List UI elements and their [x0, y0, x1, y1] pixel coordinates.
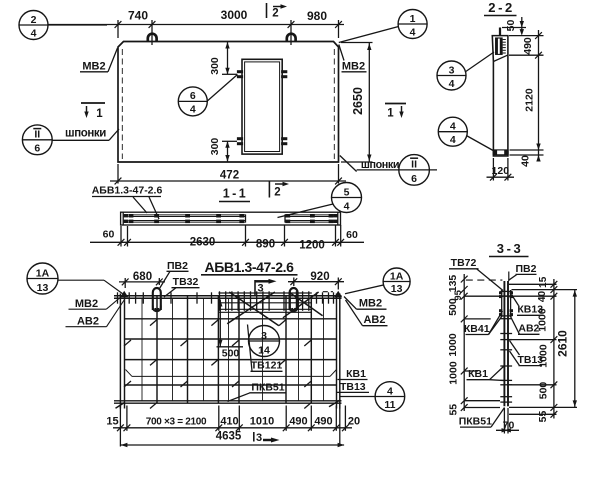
svg-text:13: 13	[37, 282, 49, 294]
svg-text:14: 14	[258, 344, 270, 356]
svg-text:3: 3	[257, 283, 263, 295]
svg-text:ПВ2: ПВ2	[167, 260, 188, 272]
svg-text:АВ2: АВ2	[77, 315, 99, 327]
svg-text:II: II	[34, 129, 40, 141]
svg-text:1010: 1010	[250, 416, 274, 428]
svg-text:70: 70	[503, 419, 515, 431]
svg-text:ПВ2: ПВ2	[516, 263, 537, 275]
svg-text:4: 4	[450, 121, 456, 133]
svg-text:3000: 3000	[221, 8, 248, 22]
svg-text:700 ×3 = 2100: 700 ×3 = 2100	[146, 416, 207, 427]
svg-text:1: 1	[410, 13, 416, 25]
svg-text:2: 2	[272, 8, 278, 20]
svg-text:ТВ13: ТВ13	[340, 381, 366, 393]
svg-text:500: 500	[222, 348, 240, 360]
svg-text:2650: 2650	[351, 87, 365, 115]
svg-text:КВ1: КВ1	[468, 368, 488, 380]
svg-text:3: 3	[256, 432, 262, 444]
svg-text:АБВ1.3-47-2.6: АБВ1.3-47-2.6	[205, 259, 295, 275]
svg-text:2630: 2630	[190, 237, 216, 249]
svg-text:1000: 1000	[447, 333, 459, 357]
svg-text:135: 135	[447, 275, 459, 293]
svg-text:55: 55	[448, 404, 460, 416]
svg-text:680: 680	[133, 271, 152, 283]
svg-text:410: 410	[220, 416, 238, 428]
svg-text:500: 500	[447, 298, 459, 316]
svg-text:II: II	[411, 159, 417, 171]
svg-text:300: 300	[209, 57, 221, 75]
svg-text:120: 120	[492, 165, 510, 177]
svg-text:1: 1	[387, 108, 394, 120]
svg-text:15: 15	[538, 276, 549, 288]
svg-text:472: 472	[220, 169, 239, 181]
svg-text:60: 60	[103, 229, 115, 241]
svg-text:2: 2	[274, 187, 280, 199]
svg-text:АБВ1.3-47-2.6: АБВ1.3-47-2.6	[92, 185, 163, 197]
svg-text:2120: 2120	[524, 88, 536, 112]
svg-text:2610: 2610	[556, 330, 570, 357]
svg-text:2 - 2: 2 - 2	[488, 0, 512, 15]
svg-text:4: 4	[387, 385, 393, 397]
svg-text:6: 6	[34, 143, 40, 155]
svg-text:1000: 1000	[448, 361, 460, 385]
svg-text:40: 40	[537, 291, 548, 303]
svg-text:КВ1: КВ1	[346, 368, 366, 380]
svg-text:6: 6	[411, 173, 417, 185]
svg-text:МВ2: МВ2	[359, 297, 382, 309]
svg-text:1А: 1А	[390, 270, 404, 282]
svg-text:шпонки: шпонки	[65, 128, 106, 140]
svg-text:1200: 1200	[299, 240, 325, 252]
svg-text:2: 2	[31, 14, 37, 26]
svg-text:1: 1	[96, 108, 103, 120]
svg-text:15: 15	[106, 416, 118, 428]
svg-text:3: 3	[449, 64, 455, 76]
svg-text:ПКВ51: ПКВ51	[251, 382, 284, 394]
svg-text:ТВ32: ТВ32	[173, 276, 199, 288]
svg-text:ПКВ51: ПКВ51	[459, 415, 492, 427]
svg-text:11: 11	[384, 399, 395, 411]
svg-text:5: 5	[344, 186, 350, 198]
svg-text:6: 6	[190, 90, 196, 102]
svg-text:980: 980	[307, 9, 327, 23]
svg-text:3 - 3: 3 - 3	[497, 241, 521, 256]
svg-text:4635: 4635	[216, 431, 242, 443]
svg-text:890: 890	[256, 239, 275, 251]
svg-text:490: 490	[522, 37, 534, 55]
svg-text:АВ2: АВ2	[363, 314, 385, 326]
svg-text:490: 490	[314, 416, 332, 428]
svg-text:55: 55	[537, 411, 549, 423]
svg-text:4: 4	[190, 104, 196, 116]
svg-text:ТВ13: ТВ13	[517, 354, 543, 366]
svg-text:4: 4	[410, 26, 416, 38]
svg-text:500: 500	[538, 382, 550, 400]
svg-text:13: 13	[391, 283, 403, 295]
svg-text:МВ2: МВ2	[342, 61, 365, 73]
svg-text:300: 300	[209, 138, 221, 156]
svg-text:20: 20	[348, 416, 360, 428]
svg-text:50: 50	[505, 20, 517, 32]
svg-text:КВ13: КВ13	[517, 304, 543, 316]
svg-text:920: 920	[310, 271, 329, 283]
svg-text:МВ2: МВ2	[75, 298, 98, 310]
svg-text:490: 490	[289, 416, 307, 428]
svg-text:АВ2: АВ2	[518, 323, 539, 335]
svg-text:ТВ72: ТВ72	[451, 257, 477, 269]
svg-text:4: 4	[450, 134, 456, 146]
svg-text:КВ41: КВ41	[464, 323, 490, 335]
svg-text:3: 3	[261, 330, 267, 342]
svg-text:4: 4	[449, 78, 455, 90]
svg-text:1 - 1: 1 - 1	[223, 187, 246, 201]
svg-text:4: 4	[31, 27, 37, 39]
svg-text:ТВ121: ТВ121	[251, 360, 283, 372]
svg-text:60: 60	[346, 229, 358, 241]
svg-text:4: 4	[344, 200, 350, 212]
svg-text:40: 40	[520, 155, 532, 167]
svg-text:740: 740	[128, 9, 148, 23]
svg-text:1А: 1А	[36, 267, 50, 279]
svg-text:МВ2: МВ2	[82, 61, 105, 73]
